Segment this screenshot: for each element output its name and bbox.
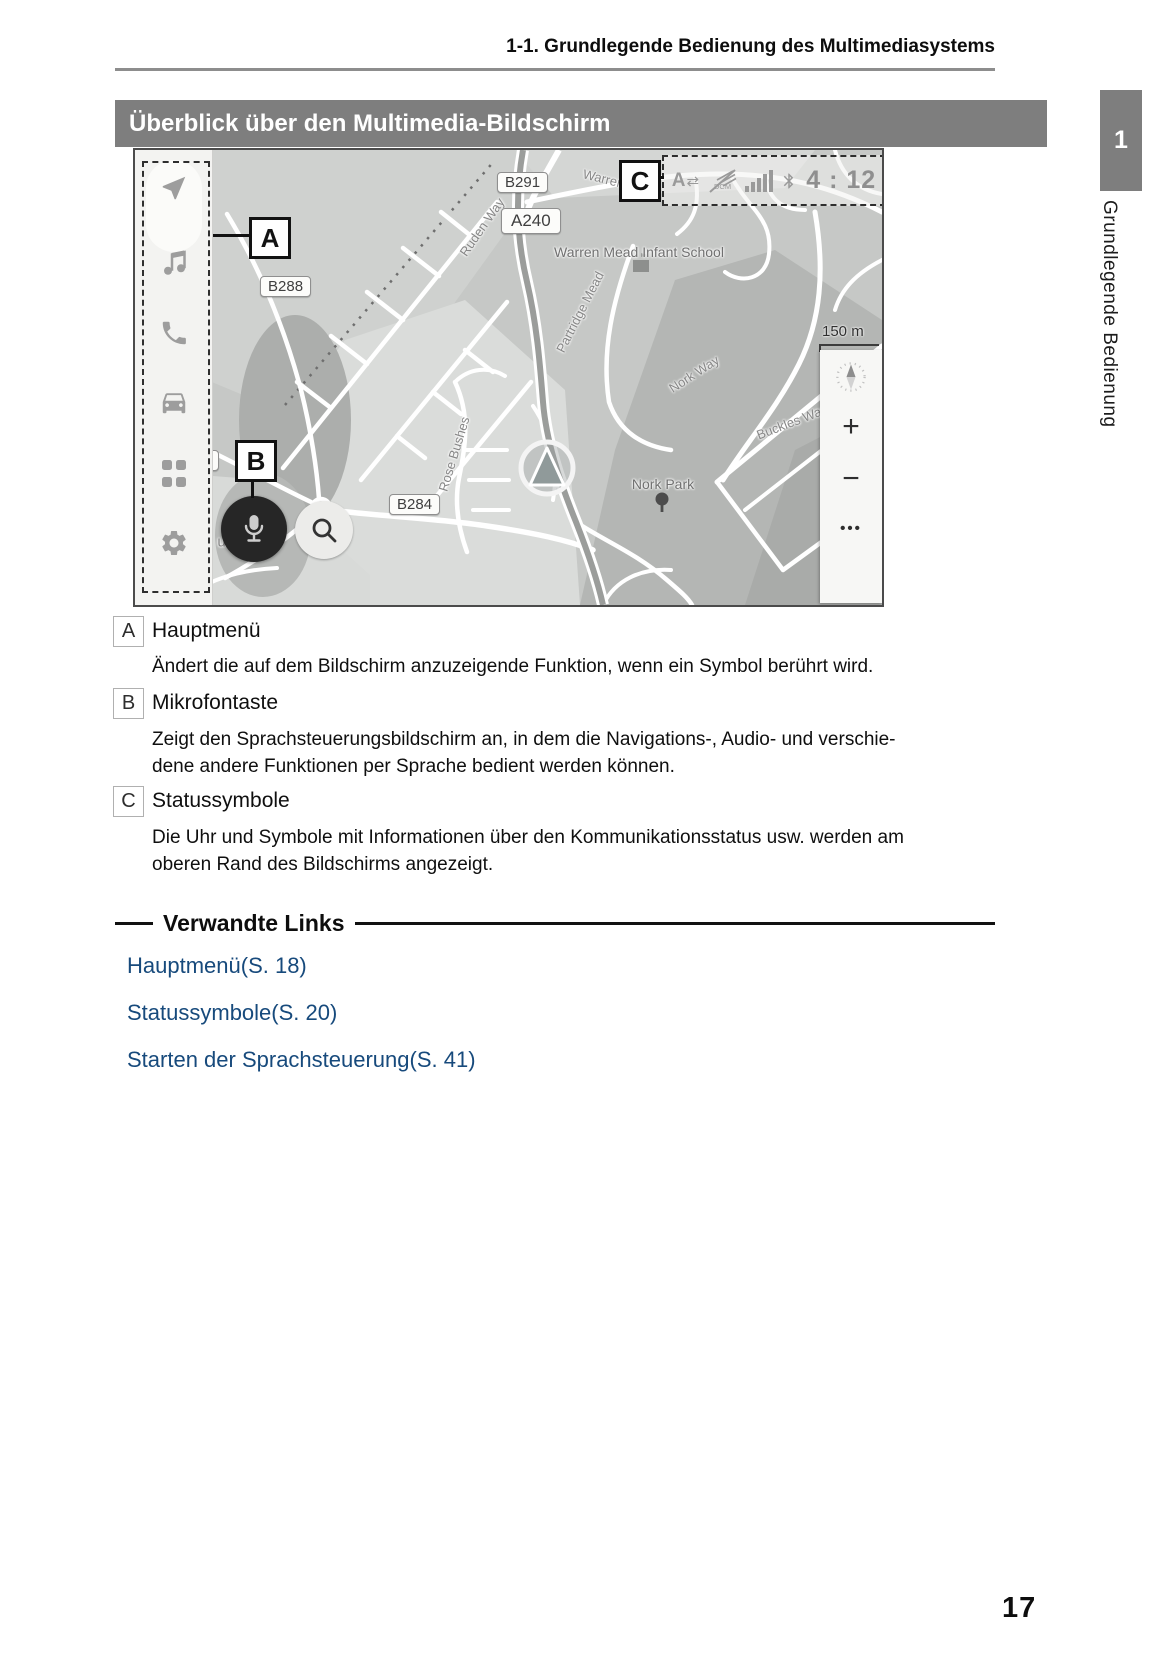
page-number: 17 bbox=[1002, 1592, 1036, 1625]
road-label-a240: A240 bbox=[501, 208, 561, 234]
status-bar: A⇄ DCM 4 : 12 bbox=[662, 155, 884, 206]
link-hauptmenu[interactable]: Hauptmenü(S. 18) bbox=[127, 953, 307, 979]
chapter-tab: 1 bbox=[1100, 90, 1142, 191]
dcm-disabled-icon: DCM bbox=[707, 168, 737, 194]
signal-strength-icon bbox=[745, 170, 773, 192]
poi-warren-mead-school: Warren Mead Infant School bbox=[554, 244, 724, 260]
legend-key-c: C bbox=[113, 786, 144, 817]
legend-title-c: Statussymbole bbox=[152, 786, 290, 816]
map-scale-label: 150 m bbox=[822, 323, 864, 340]
search-icon bbox=[309, 515, 339, 545]
legend-key-b: B bbox=[113, 688, 144, 719]
legend-desc-b-line2: dene andere Funktionen per Sprache bedie… bbox=[152, 753, 675, 780]
legend-title-a: Hauptmenü bbox=[152, 616, 261, 646]
zoom-in-button: + bbox=[842, 412, 860, 442]
legend-title-b: Mikrofontaste bbox=[152, 688, 278, 718]
compass-icon bbox=[834, 360, 868, 394]
road-label-b288: B288 bbox=[260, 276, 311, 297]
callout-b: B bbox=[235, 440, 277, 482]
poi-nork-park: Nork Park bbox=[632, 476, 694, 492]
callout-c: C bbox=[619, 160, 661, 202]
chapter-side-label: Grundlegende Bedienung bbox=[1098, 200, 1120, 500]
microphone-button bbox=[221, 496, 287, 562]
legend-desc-c-line2: oberen Rand des Bildschirms angezeigt. bbox=[152, 851, 493, 878]
legend-desc-a-line1: Ändert die auf dem Bildschirm anzuzeigen… bbox=[152, 653, 873, 680]
running-header: 1-1. Grundlegende Bedienung des Multimed… bbox=[115, 36, 995, 58]
legend-desc-c-line1: Die Uhr und Symbole mit Informationen üb… bbox=[152, 824, 904, 851]
search-button bbox=[295, 501, 353, 559]
road-label-b284: B284 bbox=[389, 494, 440, 515]
link-statussymbole[interactable]: Statussymbole(S. 20) bbox=[127, 1000, 337, 1026]
section-title-bar: Überblick über den Multimedia-Bildschirm bbox=[115, 100, 1047, 147]
link-sprachsteuerung[interactable]: Starten der Sprachsteuerung(S. 41) bbox=[127, 1047, 476, 1073]
related-links-rule-left bbox=[115, 922, 153, 925]
related-links-title: Verwandte Links bbox=[153, 910, 355, 937]
multimedia-screen-illustration: Ruden Way Warren Roa Warren Mead Infant … bbox=[133, 148, 884, 607]
header-rule bbox=[115, 68, 995, 71]
callout-a: A bbox=[249, 217, 291, 259]
clock: 4 : 12 bbox=[806, 166, 876, 195]
road-label-b291: B291 bbox=[497, 172, 548, 193]
legend-key-a: A bbox=[113, 616, 144, 647]
map-control-panel: + − ••• bbox=[820, 350, 882, 603]
related-links-rule-right bbox=[355, 922, 995, 925]
microphone-icon bbox=[240, 512, 268, 546]
section-title: Überblick über den Multimedia-Bildschirm bbox=[115, 110, 610, 138]
language-sync-icon: A⇄ bbox=[672, 170, 699, 192]
vehicle-position-marker bbox=[521, 442, 573, 494]
more-options-button: ••• bbox=[840, 520, 862, 537]
main-menu-callout-frame bbox=[142, 161, 210, 593]
legend-desc-b-line1: Zeigt den Sprachsteuerungsbildschirm an,… bbox=[152, 726, 896, 753]
manual-page: 1-1. Grundlegende Bedienung des Multimed… bbox=[0, 0, 1165, 1653]
bluetooth-icon bbox=[780, 169, 798, 193]
callout-a-connector bbox=[213, 234, 251, 237]
zoom-out-button: − bbox=[842, 464, 860, 494]
related-links-header: Verwandte Links bbox=[115, 910, 995, 937]
